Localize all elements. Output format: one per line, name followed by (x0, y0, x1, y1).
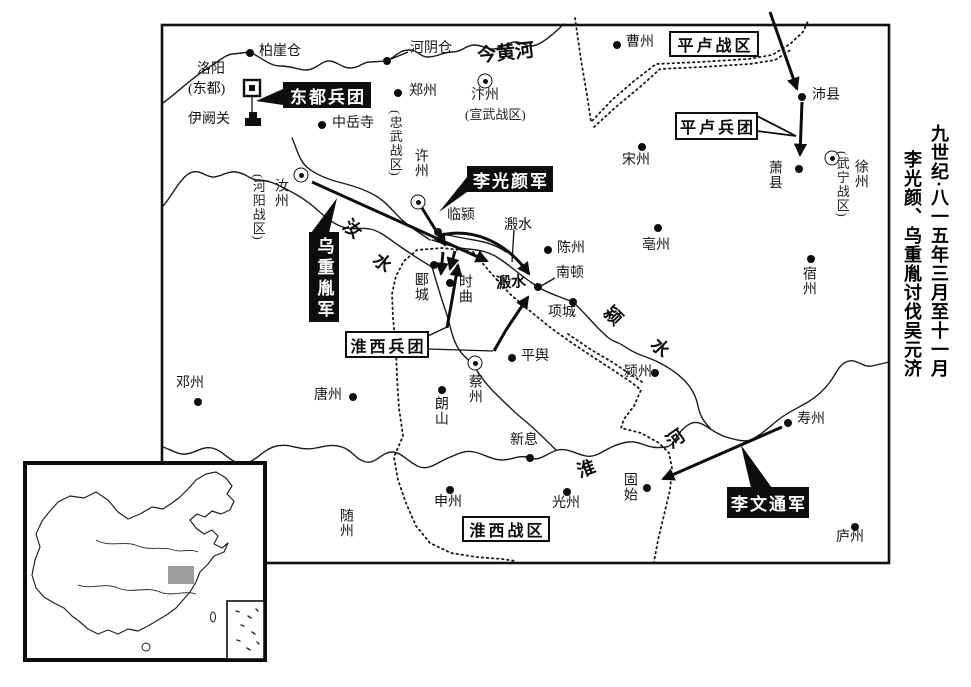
dengzhou-label: 邓州 (176, 377, 204, 392)
songzhou-marker (638, 143, 646, 151)
yingzhou-label: 颍州 (624, 366, 652, 381)
tangzhou-label: 唐州 (314, 389, 342, 404)
ruzhou-label: 汝州 (272, 178, 287, 208)
zhongyuesi-label: 中岳寺 (332, 117, 374, 132)
zhongyuesi-marker (318, 121, 326, 129)
guangzhou-marker (563, 488, 571, 496)
suzhou-label: 宿州 (800, 266, 815, 296)
shenzhou-marker (446, 486, 454, 494)
pei-to-xiao-arrow (800, 102, 802, 155)
luoyang-label: 洛阳 (197, 63, 225, 78)
xuzhou-chu-label: 许州 (412, 148, 427, 178)
yancheng-attack-arrow-1 (441, 252, 443, 274)
linying-label: 临颍 (447, 209, 475, 224)
liwentong-jun-box: 李文通军 (727, 487, 809, 518)
yancheng-marker (430, 261, 438, 269)
caozhou-marker (613, 41, 621, 49)
zhengzhou-label: 郑州 (409, 85, 437, 100)
yinshui-town-name: 溵水 (495, 270, 526, 293)
ruzhou-marker (294, 168, 309, 183)
yancheng-attack-arrow-2 (450, 251, 455, 269)
bozhou-label: 亳州 (642, 239, 670, 254)
gushi-marker (643, 484, 651, 492)
huaixi-callout-line-1 (428, 327, 447, 336)
chenzhou-marker (544, 246, 552, 254)
chenzhou-label: 陈州 (557, 242, 585, 257)
heyang-zone-label: (河阳战区) (251, 174, 265, 241)
rivers-group (163, 24, 889, 468)
bianzhou-label: 汴州 (471, 89, 499, 104)
xuzhou-chu-marker (411, 195, 426, 210)
langshan-marker (438, 386, 446, 394)
dengzhou-marker (194, 398, 202, 406)
bozhou-marker (654, 224, 662, 232)
bianzhou-marker (478, 74, 493, 89)
shouzhou-label: 寿州 (797, 413, 825, 428)
tangzhou-marker (349, 393, 357, 401)
songzhou-label: 宋州 (622, 154, 650, 169)
guangzhou-label: 光州 (552, 497, 580, 512)
yiqueguan-label: 伊阙关 (188, 113, 230, 128)
pinglu-advance-arrow (770, 12, 797, 89)
linying-marker (434, 228, 442, 236)
heyincang-label: 河阴仓 (410, 42, 452, 57)
wuchongyin-jun-box: 乌重胤军 (309, 232, 339, 322)
map-title-line-2: 李光颜、乌重胤讨伐吴元济 (899, 150, 925, 378)
xuzhou-wuning-label: 徐州 (852, 159, 867, 189)
nandun-label: 南顿 (556, 267, 584, 282)
caozhou-label: 曹州 (626, 36, 654, 51)
baiyacang-label: 柏崖仓 (259, 45, 301, 60)
taiwan-outline (211, 612, 216, 622)
xiangcheng-label: 项城 (548, 306, 576, 321)
xuanwu-zone-label: (宣武战区) (465, 108, 526, 122)
pingyu-label: 平舆 (521, 350, 549, 365)
liguangyan-pointer (439, 177, 467, 212)
map-title-line-1: 九世纪·八一五年三月至十一月 (926, 124, 952, 378)
yingzhou-marker (651, 369, 659, 377)
hainan-outline (142, 643, 150, 651)
pingyu-marker (508, 354, 516, 362)
pinglu-pointer (757, 116, 796, 136)
gushi-label: 固始 (621, 472, 636, 502)
liwentong-pointer (741, 445, 772, 488)
map-frame (162, 25, 889, 563)
caizhou-marker (468, 356, 483, 371)
inset-map-group (25, 463, 265, 660)
shouzhou-marker (784, 419, 792, 427)
langshan-label: 朗山 (432, 396, 447, 426)
yinshui-river-name: 溵水 (504, 214, 532, 234)
huaixi-counter-arrow-2 (494, 297, 528, 351)
xiaoxian-marker (795, 165, 803, 173)
suzhou-marker (807, 255, 815, 263)
pinglu-zhanqu-box: 平卢战区 (669, 31, 759, 57)
luzhou-label: 庐州 (836, 531, 864, 546)
xinxi-label: 新息 (510, 434, 538, 449)
liguangyan-jun-box: 李光颜军 (467, 166, 553, 192)
heyincang-marker (383, 57, 391, 65)
pass-gate-icon (245, 112, 261, 126)
shiqu-marker (446, 279, 454, 287)
capital-icon-core (249, 85, 255, 91)
nandun-marker (534, 283, 542, 291)
historical-campaign-map: 柏崖仓河阴仓郑州中岳寺洛阳(东都)伊阙关曹州沛县萧县宋州宿州徐州(武宁战区)汴州… (0, 0, 971, 687)
shiqu-label: 时曲 (456, 274, 471, 304)
nandun-callout-line (541, 278, 555, 286)
yancheng-label: 郾城 (412, 272, 427, 302)
shenzhou-label: 申州 (434, 496, 462, 511)
wuning-zone-label: (武宁战区) (835, 151, 849, 218)
wuchongyin-pointer (311, 198, 337, 233)
xiaoxian-label: 萧县 (766, 160, 781, 190)
dongdu-bingtuan-box: 东都兵团 (283, 82, 371, 108)
peixian-label: 沛县 (812, 89, 840, 104)
peixian-marker (798, 93, 806, 101)
south-sea-inset-box (227, 601, 264, 659)
luoyang-dongdu-label: (东都) (188, 83, 225, 98)
zhengzhou-marker (394, 89, 402, 97)
liguangyan-advance-arrow (422, 208, 445, 245)
pinglu-bingtuan-box: 平卢兵团 (675, 112, 758, 140)
huaixi-bingtuan-box: 淮西兵团 (345, 331, 429, 358)
xinxi-marker (526, 454, 534, 462)
huaixi-zhanqu-box: 淮西战区 (462, 516, 550, 542)
suizhou-label: 随州 (337, 508, 352, 538)
zhongwu-zone-label: (忠武战区) (388, 110, 402, 177)
caizhou-label: 蔡州 (466, 374, 481, 404)
campaign-region-highlight (168, 566, 194, 584)
baiyacang-marker (246, 49, 254, 57)
huai-river-path (163, 361, 889, 468)
